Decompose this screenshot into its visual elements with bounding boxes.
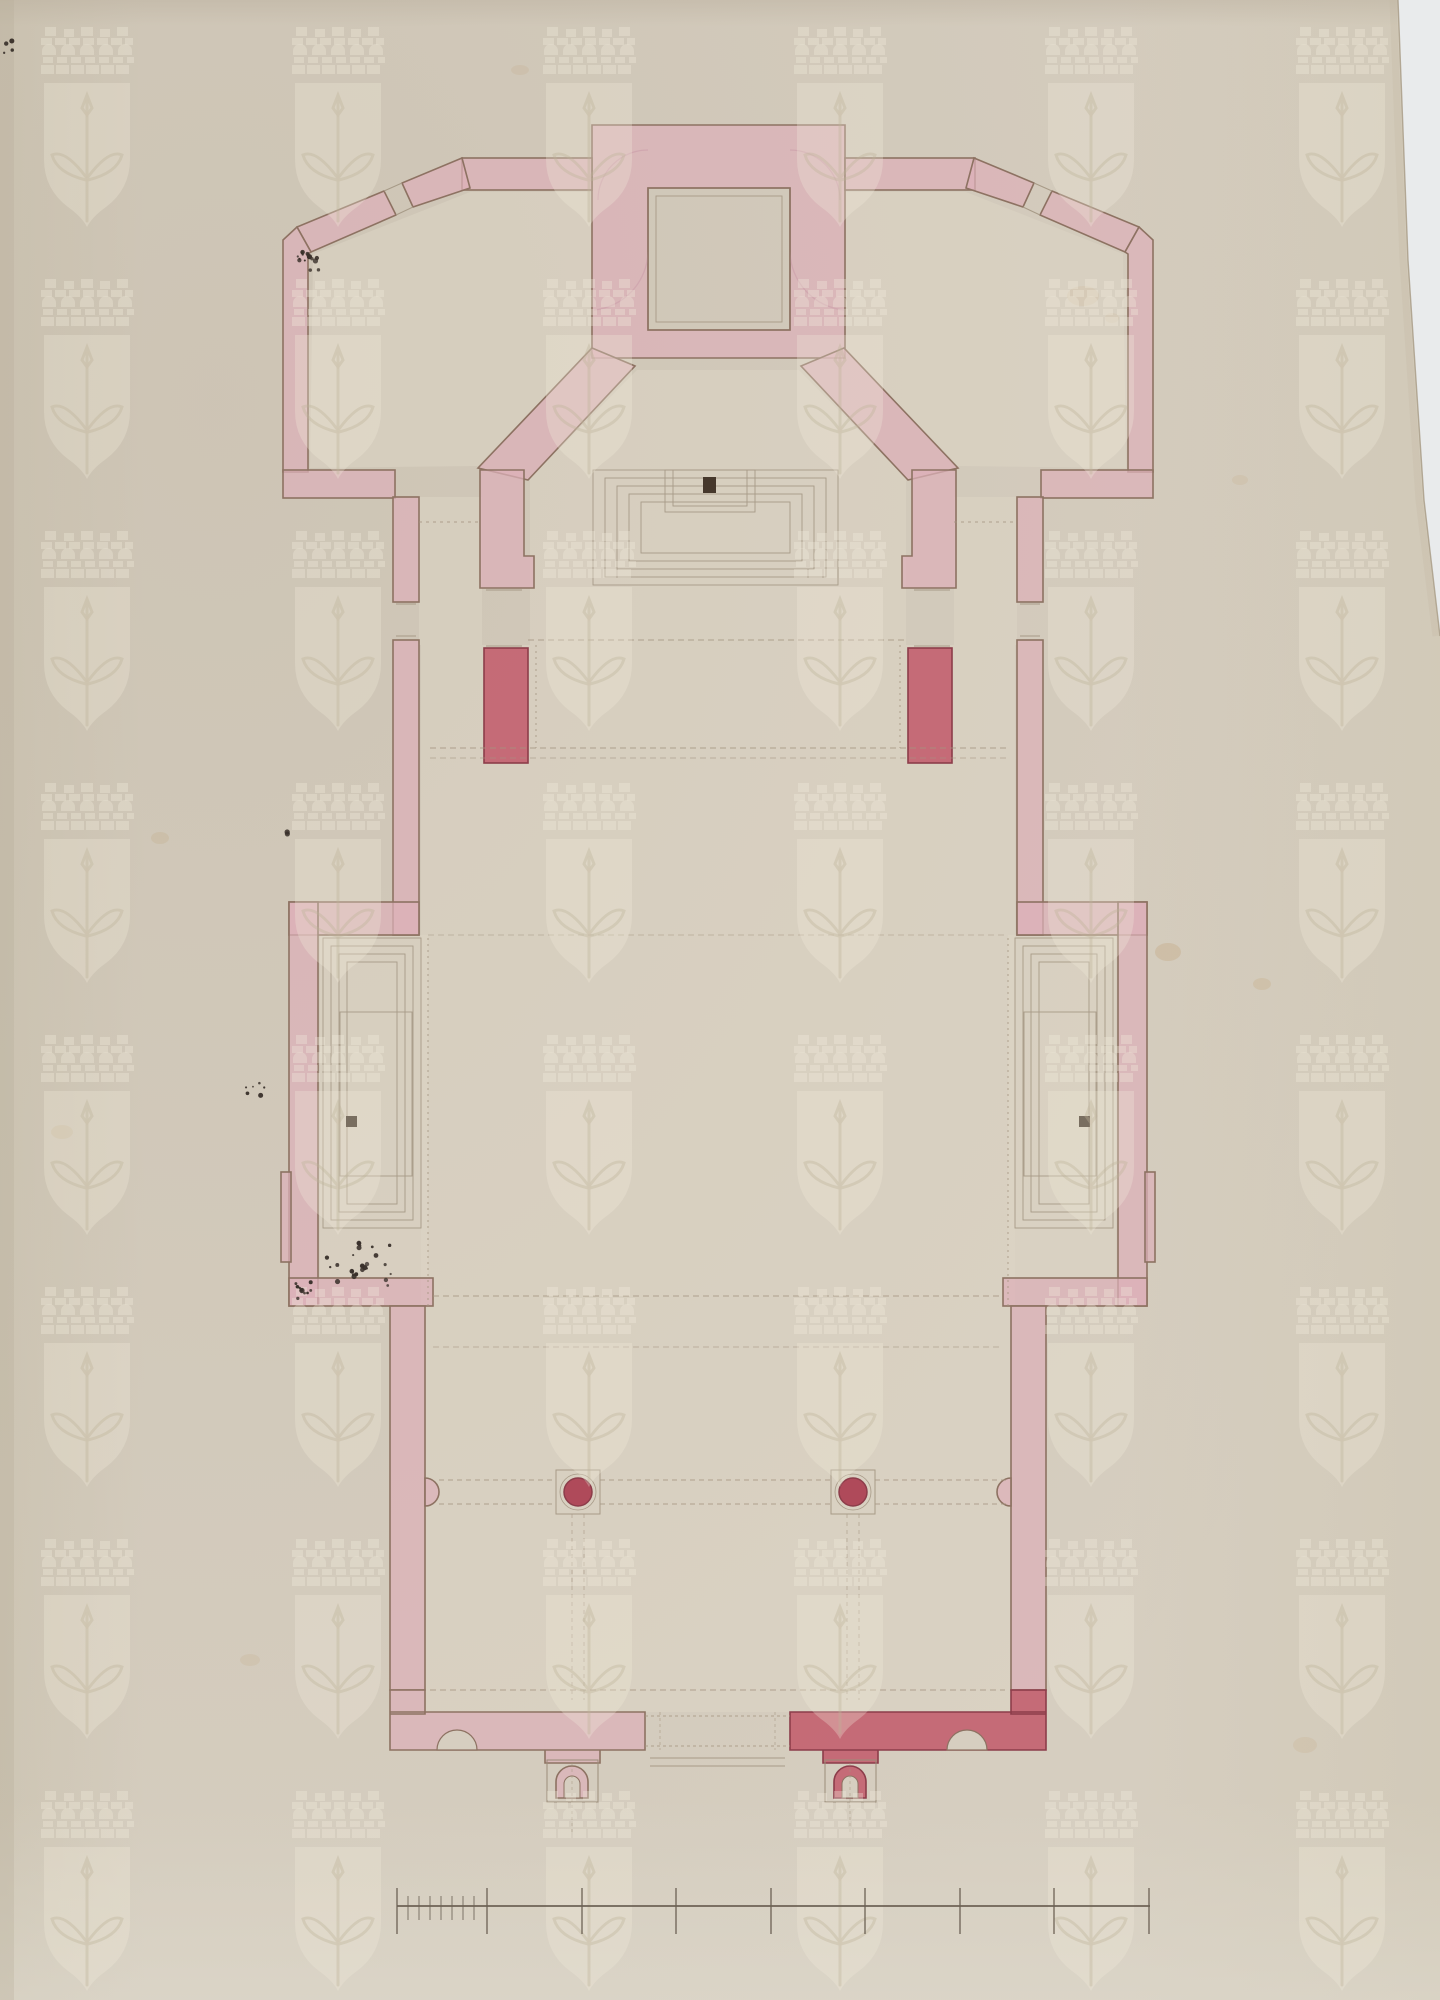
floor-plan-svg xyxy=(0,0,1440,2000)
watermark-pattern xyxy=(0,0,1440,2000)
scanned-drawing-page xyxy=(0,0,1440,2000)
